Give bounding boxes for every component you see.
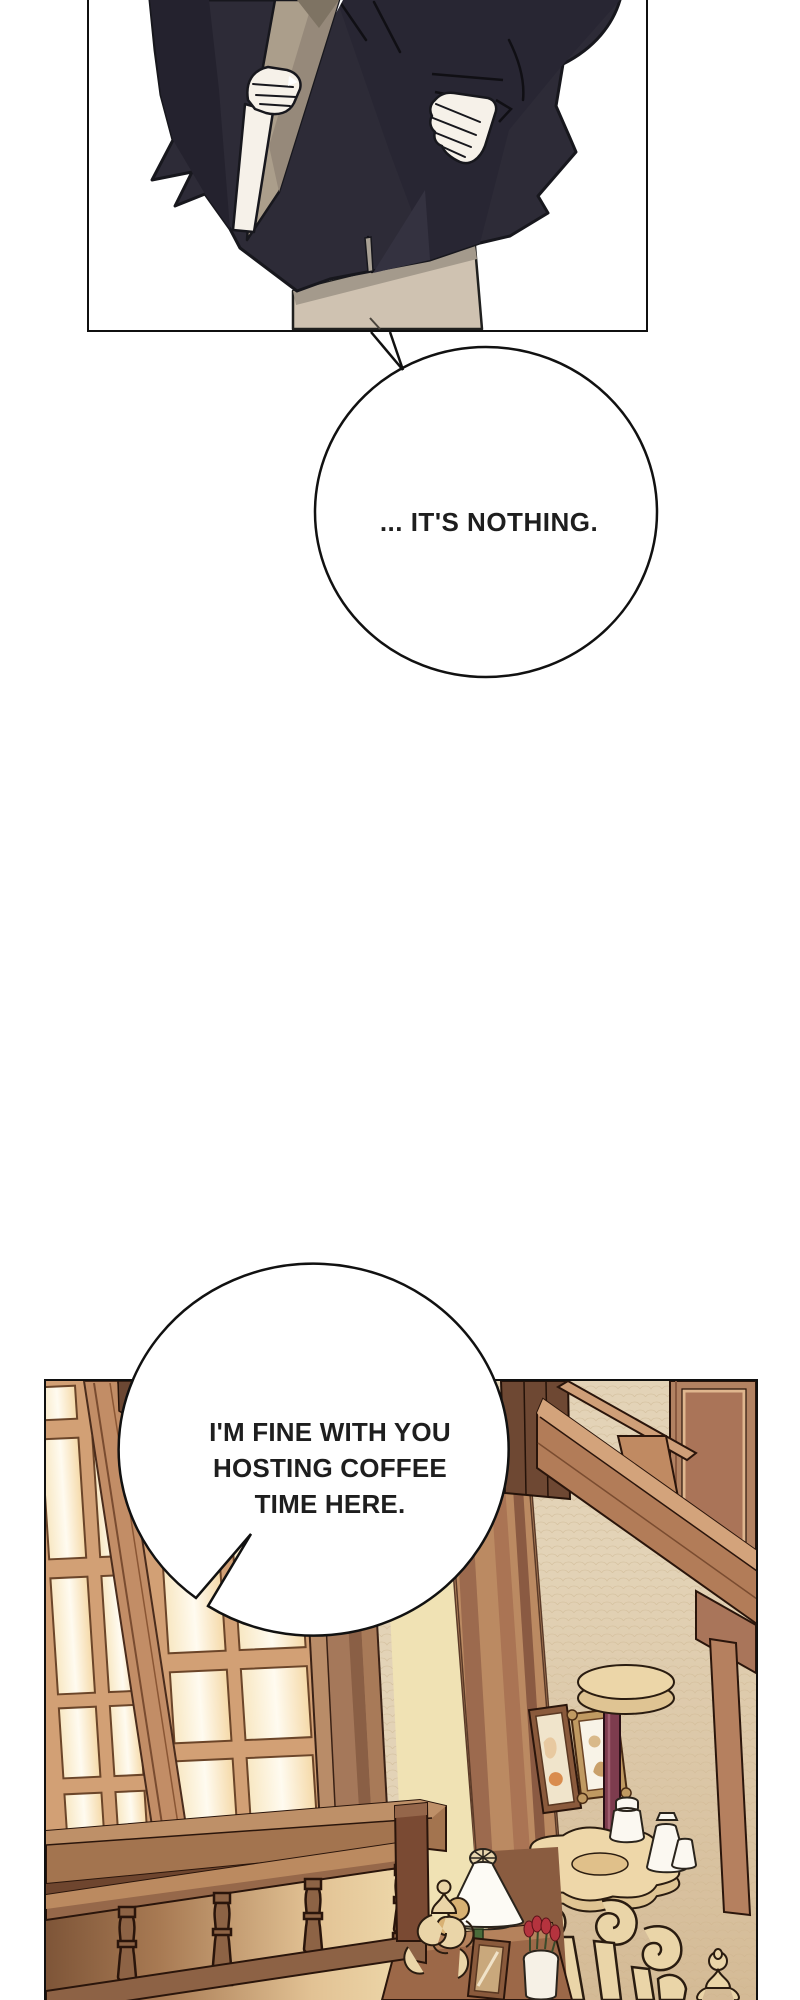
svg-text:... IT'S NOTHING.: ... IT'S NOTHING. <box>380 507 598 537</box>
svg-text:I'M FINE WITH YOU: I'M FINE WITH YOU <box>209 1417 451 1447</box>
svg-text:HOSTING COFFEE: HOSTING COFFEE <box>213 1453 447 1483</box>
svg-text:TIME HERE.: TIME HERE. <box>255 1489 406 1519</box>
